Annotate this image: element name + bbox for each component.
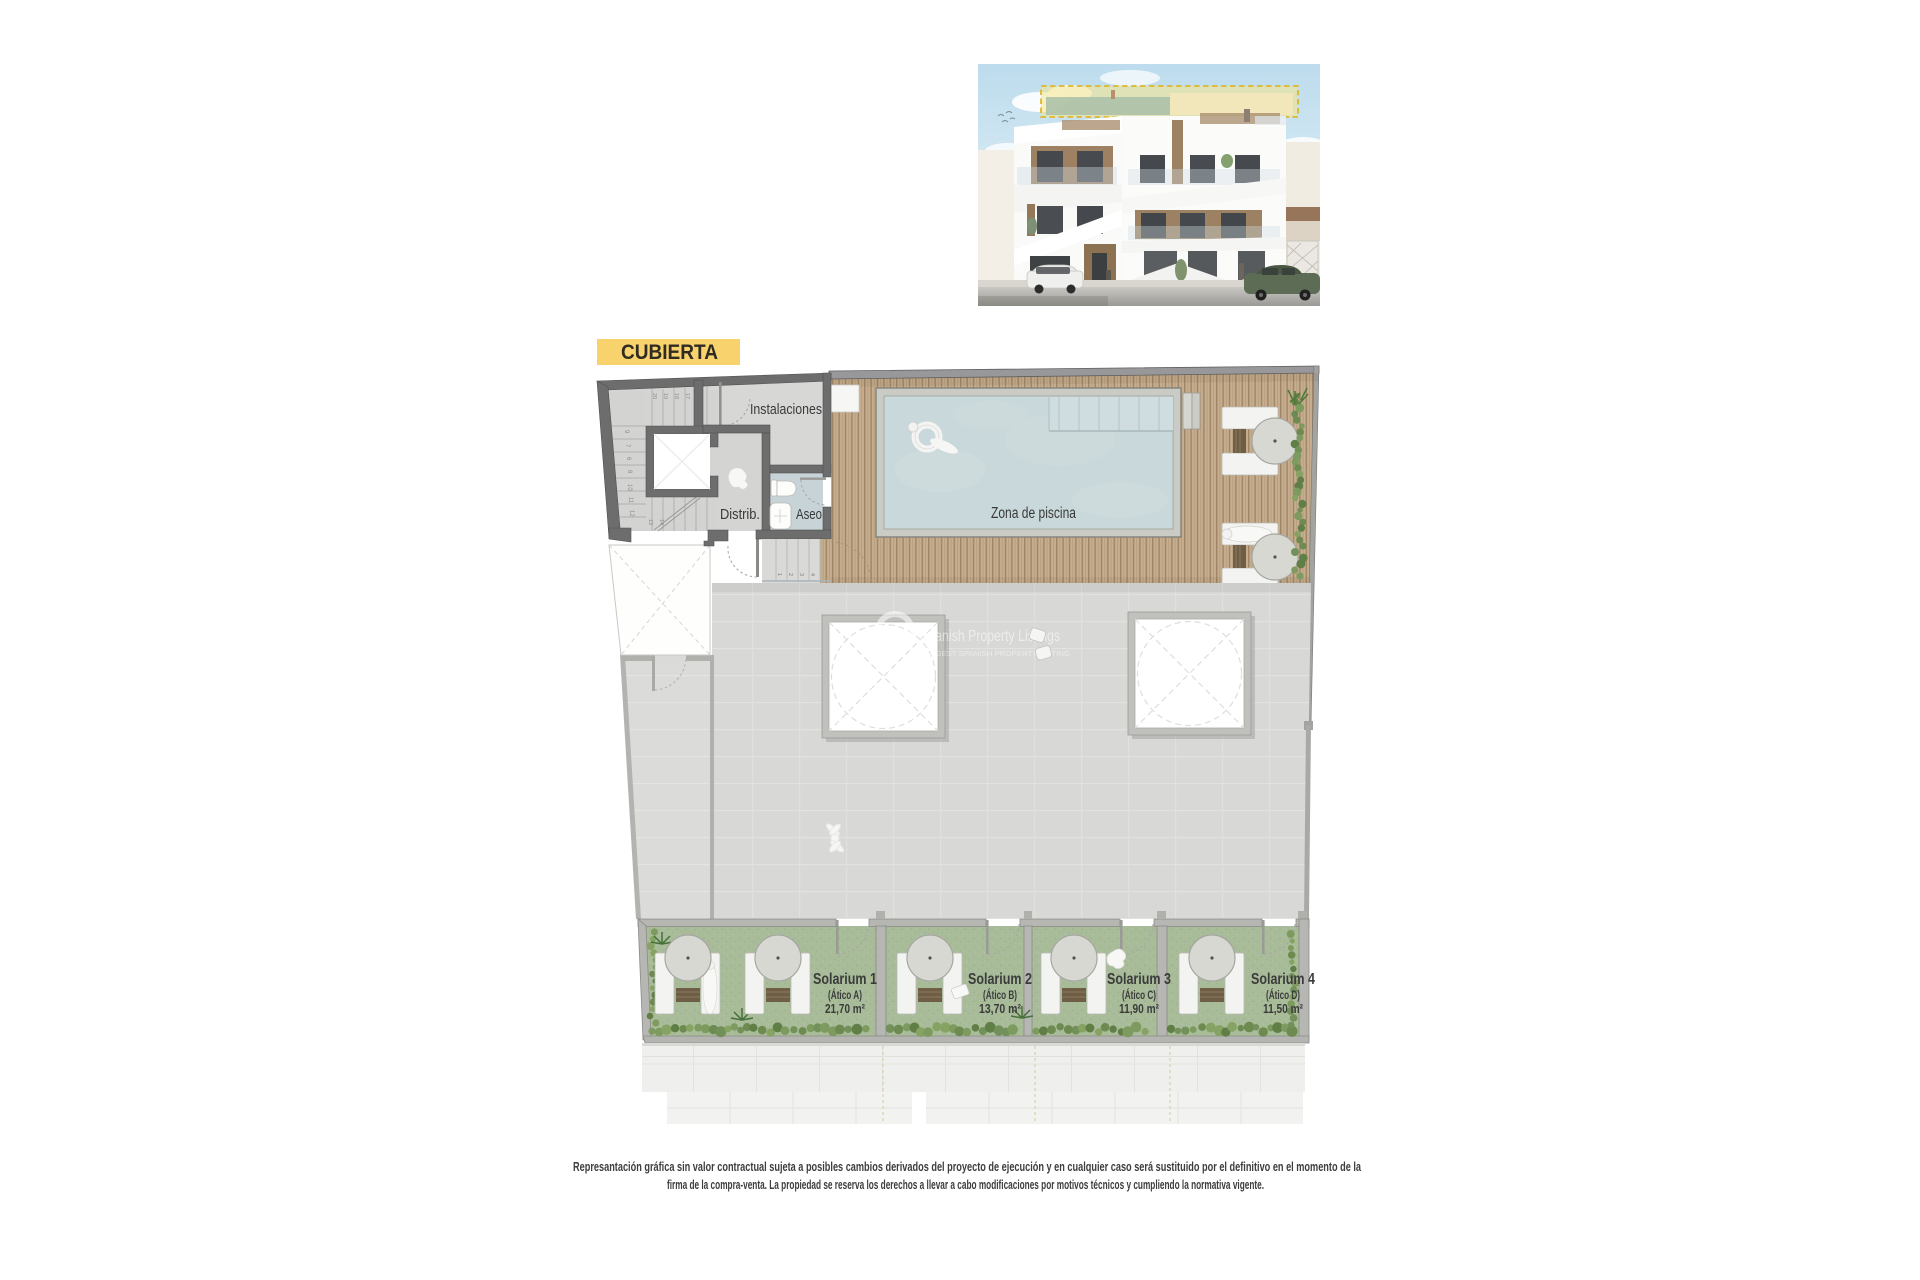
svg-text:14: 14 <box>658 519 664 525</box>
svg-text:(Ático D): (Ático D) <box>1266 987 1300 1002</box>
svg-text:Aseo: Aseo <box>796 506 822 523</box>
svg-text:Solarium 1: Solarium 1 <box>813 971 877 988</box>
svg-text:12: 12 <box>628 510 634 517</box>
svg-text:11: 11 <box>627 497 633 504</box>
svg-text:2: 2 <box>787 573 793 576</box>
svg-text:3: 3 <box>798 573 804 576</box>
svg-text:Solarium 2: Solarium 2 <box>968 971 1032 988</box>
svg-text:(Ático B): (Ático B) <box>983 987 1017 1002</box>
svg-text:21,70 m²: 21,70 m² <box>825 1001 866 1016</box>
svg-text:Solarium 3: Solarium 3 <box>1107 971 1171 988</box>
svg-text:Represantación gráfica sin val: Represantación gráfica sin valor contrac… <box>573 1159 1361 1174</box>
svg-text:Distrib.: Distrib. <box>720 506 760 523</box>
svg-text:10: 10 <box>626 484 632 491</box>
svg-text:13,70 m²: 13,70 m² <box>979 1001 1022 1016</box>
svg-text:18: 18 <box>673 393 679 399</box>
svg-text:(Ático C): (Ático C) <box>1122 987 1156 1002</box>
svg-text:1: 1 <box>776 573 782 576</box>
svg-text:20: 20 <box>651 393 657 399</box>
svg-text:Zona de piscina: Zona de piscina <box>991 505 1076 522</box>
svg-text:CUBIERTA: CUBIERTA <box>621 340 718 364</box>
svg-text:Instalaciones: Instalaciones <box>750 401 822 418</box>
svg-text:17: 17 <box>684 393 690 399</box>
svg-text:Solarium 4: Solarium 4 <box>1251 971 1315 988</box>
svg-text:4: 4 <box>809 573 815 576</box>
svg-text:11,50 m²: 11,50 m² <box>1263 1001 1304 1016</box>
svg-text:13: 13 <box>647 519 653 525</box>
svg-text:19: 19 <box>662 393 668 399</box>
svg-text:firma de la compra-venta. La p: firma de la compra-venta. La propiedad s… <box>667 1177 1264 1192</box>
svg-text:11,90 m²: 11,90 m² <box>1119 1001 1160 1016</box>
svg-text:(Ático A): (Ático A) <box>828 987 862 1002</box>
